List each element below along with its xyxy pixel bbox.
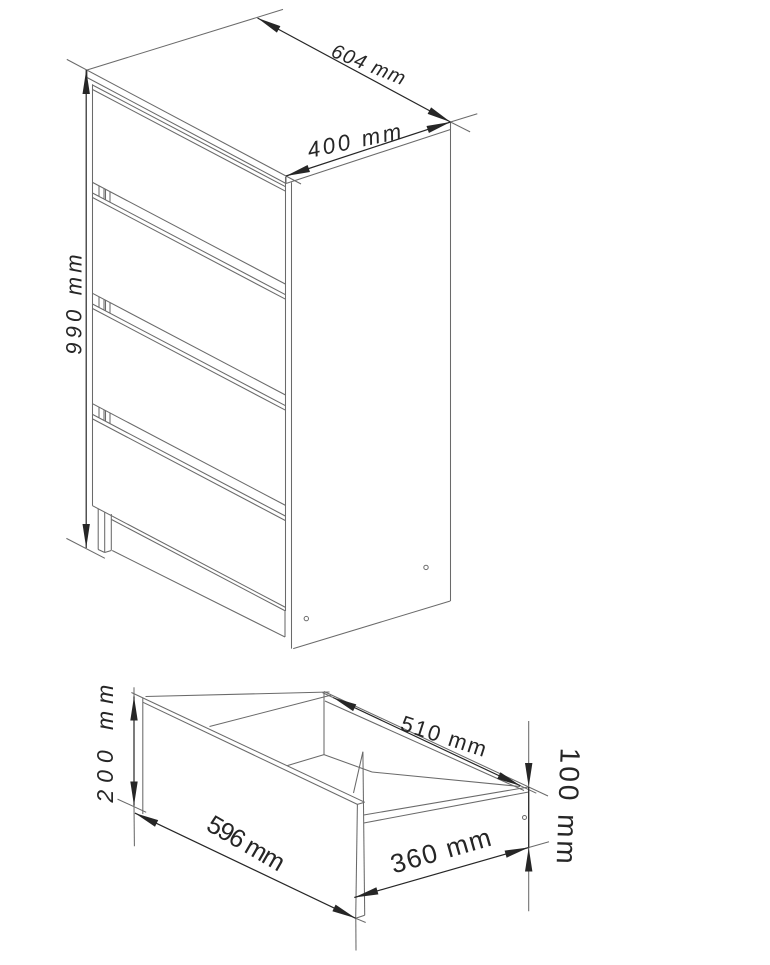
svg-text:200 mm: 200 mm [92, 678, 118, 804]
svg-text:990 mm: 990 mm [61, 250, 86, 355]
svg-text:100 mm: 100 mm [551, 747, 586, 867]
